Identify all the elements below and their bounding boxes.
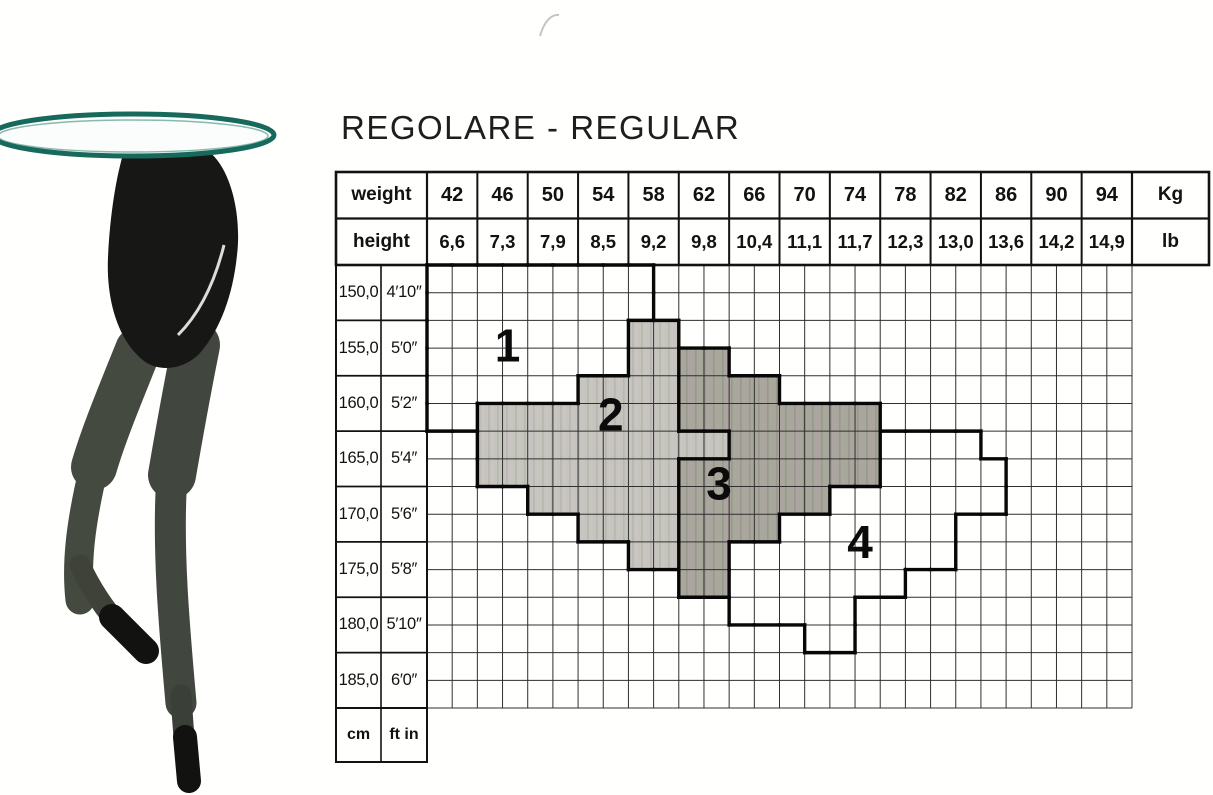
height-row-value: 6,6 (427, 219, 477, 266)
height-ftin-label: 5′0″ (381, 320, 427, 375)
height-row-value: 11,1 (780, 219, 830, 266)
height-ftin-label: 6′0″ (381, 653, 427, 708)
weight-value: 50 (528, 172, 578, 219)
height-row-value: 7,9 (528, 219, 578, 266)
height-ftin-label: 5′6″ (381, 487, 427, 542)
weight-value: 90 (1031, 172, 1081, 219)
height-row-value: 13,0 (931, 219, 981, 266)
height-cm-label: 150,0 (336, 265, 381, 320)
height-cm-label: 160,0 (336, 376, 381, 431)
zone-number-2: 2 (598, 389, 624, 441)
height-ftin-label: 4′10″ (381, 265, 427, 320)
height-cm-label: 180,0 (336, 597, 381, 652)
height-row-value: 10,4 (729, 219, 779, 266)
height-row-value: 8,5 (578, 219, 628, 266)
height-row-value: 14,2 (1031, 219, 1081, 266)
height-cm-label: 185,0 (336, 653, 381, 708)
zone-number-1: 1 (495, 319, 521, 371)
kg-unit-label: Kg (1132, 172, 1209, 218)
weight-value: 54 (578, 172, 628, 219)
zone-number-3: 3 (706, 458, 732, 510)
weight-row-label: weight (336, 172, 427, 218)
height-cm-label: 175,0 (336, 542, 381, 597)
ftin-footer-label: ft in (381, 708, 427, 762)
page-title: REGOLARE - REGULAR (341, 109, 740, 147)
weight-value: 46 (477, 172, 527, 219)
weight-value: 66 (729, 172, 779, 219)
height-row-value: 9,2 (628, 219, 678, 266)
weight-value: 78 (880, 172, 930, 219)
weight-value: 94 (1082, 172, 1132, 219)
height-row-value: 13,6 (981, 219, 1031, 266)
height-row-value: 9,8 (679, 219, 729, 266)
lb-unit-label: lb (1132, 219, 1209, 265)
height-cm-label: 165,0 (336, 431, 381, 486)
height-row-label: height (336, 219, 427, 265)
zone-number-4: 4 (847, 516, 873, 568)
weight-value: 70 (780, 172, 830, 219)
height-row-value: 11,7 (830, 219, 880, 266)
scan-smudge (540, 15, 559, 36)
size-chart-page: REGOLARE - REGULAR 1234 weight height Kg… (0, 0, 1213, 795)
weight-value: 74 (830, 172, 880, 219)
height-row-value: 14,9 (1082, 219, 1132, 266)
weight-value: 86 (981, 172, 1031, 219)
height-ftin-label: 5′4″ (381, 431, 427, 486)
height-ftin-label: 5′8″ (381, 542, 427, 597)
weight-value: 62 (679, 172, 729, 219)
weight-value: 82 (931, 172, 981, 219)
height-row-value: 12,3 (880, 219, 930, 266)
height-cm-label: 170,0 (336, 487, 381, 542)
height-ftin-label: 5′10″ (381, 597, 427, 652)
height-cm-label: 155,0 (336, 320, 381, 375)
cm-footer-label: cm (336, 708, 381, 762)
weight-value: 58 (628, 172, 678, 219)
height-row-value: 7,3 (477, 219, 527, 266)
height-ftin-label: 5′2″ (381, 376, 427, 431)
weight-value: 42 (427, 172, 477, 219)
